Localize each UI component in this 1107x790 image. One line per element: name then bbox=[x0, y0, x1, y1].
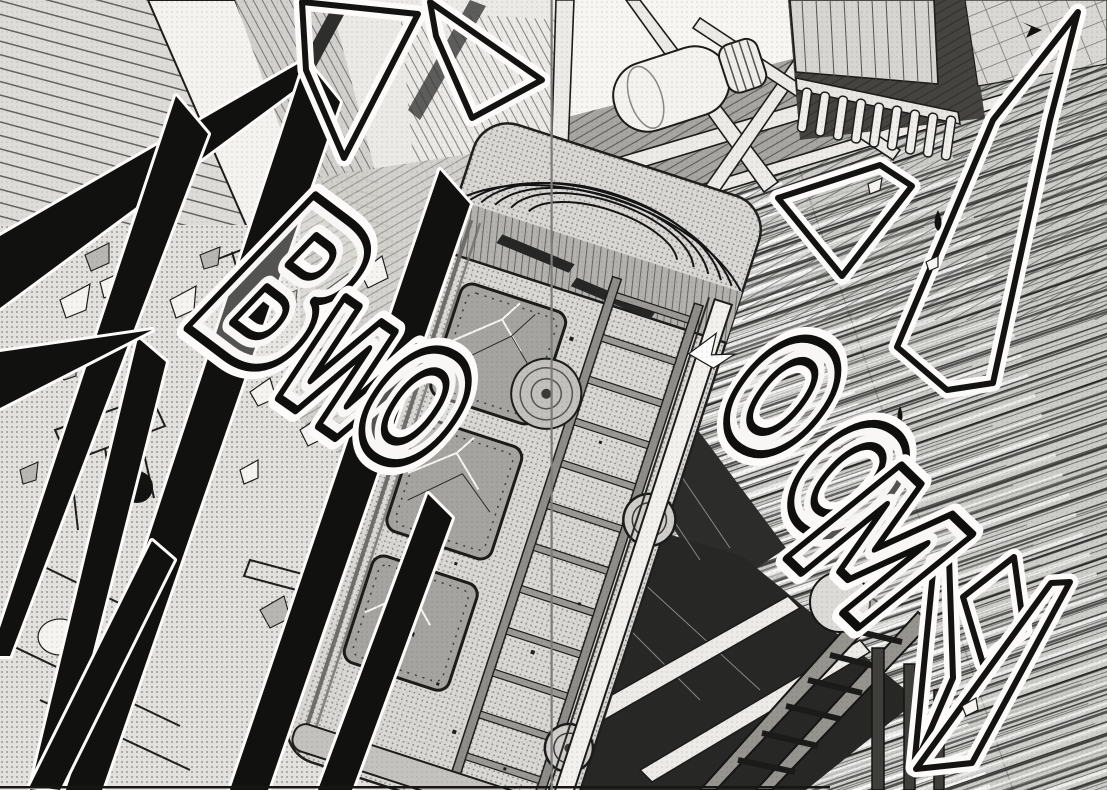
manga-art: K bbox=[0, 0, 1107, 790]
page-gutter-line bbox=[551, 0, 553, 790]
bottom-trim-line bbox=[0, 786, 830, 789]
manga-spread: K bbox=[0, 0, 1107, 790]
